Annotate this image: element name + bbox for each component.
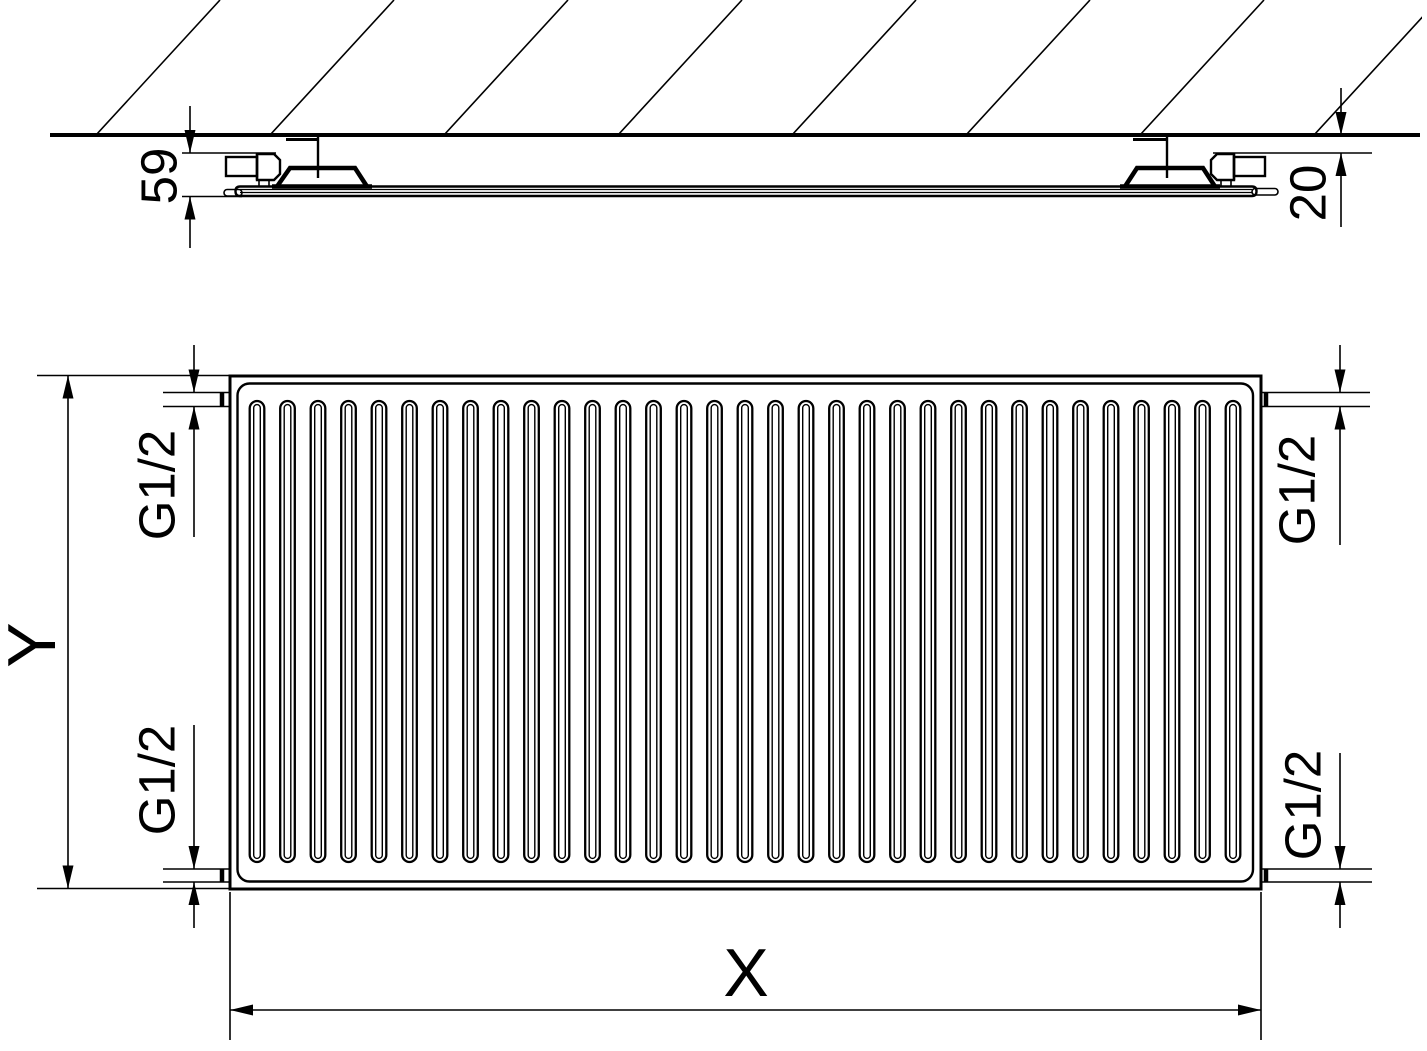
left-clip <box>277 168 367 187</box>
channel-slot <box>372 401 387 862</box>
channel-slot-inner <box>254 405 261 859</box>
channel-slot-inner <box>1169 405 1176 859</box>
channel-slot <box>341 401 356 862</box>
channel-slot-inner <box>681 405 688 859</box>
stub-bottom-right <box>1261 869 1372 882</box>
channel-slot <box>1226 401 1241 862</box>
wall-hatch <box>96 0 1427 135</box>
dim-wall-gap-label: 20 <box>1280 165 1337 222</box>
channel-slot-inner <box>1199 405 1206 859</box>
dim-width-label: X <box>723 935 768 1011</box>
channel-slot-inner <box>1230 405 1237 859</box>
channel-slot <box>890 401 905 862</box>
channel-slot-inner <box>345 405 352 859</box>
channel-slot <box>1195 401 1210 862</box>
channel-slot <box>677 401 692 862</box>
channel-slot-inner <box>315 405 322 859</box>
channel-slot-inner <box>772 405 779 859</box>
channel-slot <box>951 401 966 862</box>
slab-left-cap <box>236 187 241 197</box>
channel-slot-inner <box>955 405 962 859</box>
channel-slot-inner <box>803 405 810 859</box>
channel-slot <box>280 401 295 862</box>
channel-slot <box>585 401 600 862</box>
channel-slot-inner <box>284 405 291 859</box>
right-bracket <box>1120 137 1220 187</box>
channel-slot-inner <box>833 405 840 859</box>
channel-slot-inner <box>498 405 505 859</box>
channel-slot-inner <box>620 405 627 859</box>
channel-slot <box>524 401 539 862</box>
channel-slot <box>1165 401 1180 862</box>
channel-slot-inner <box>1077 405 1084 859</box>
channel-slot-inner <box>742 405 749 859</box>
radiator-inner-frame <box>238 384 1254 882</box>
channel-slot <box>921 401 936 862</box>
channel-slot <box>616 401 631 862</box>
channel-slot-inner <box>1108 405 1115 859</box>
conn-top-left-label: G1/2 <box>129 430 186 541</box>
channel-slot-inner <box>711 405 718 859</box>
channel-slot <box>1012 401 1027 862</box>
channel-slot <box>494 401 509 862</box>
channel-slot <box>829 401 844 862</box>
dim-height-label: Y <box>0 622 70 667</box>
left-valve <box>226 154 280 187</box>
channel-slot <box>707 401 722 862</box>
dim-conn-top-left: G1/2 <box>129 345 200 540</box>
channel-slot <box>982 401 997 862</box>
channel-slots <box>250 401 1241 862</box>
channel-slot-inner <box>894 405 901 859</box>
channel-slot <box>433 401 448 862</box>
dim-height-Y: Y <box>0 376 230 889</box>
dim-conn-bottom-left: G1/2 <box>129 725 200 928</box>
channel-slot <box>646 401 661 862</box>
stub-top-left <box>163 393 230 407</box>
stub-top-right <box>1261 393 1370 407</box>
channel-slot-inner <box>986 405 993 859</box>
channel-slot-inner <box>437 405 444 859</box>
conn-bottom-left-label: G1/2 <box>129 725 186 836</box>
left-bracket <box>272 137 372 187</box>
channel-slot <box>555 401 570 862</box>
channel-slot <box>738 401 753 862</box>
stub-bottom-left <box>163 869 230 882</box>
channel-slot <box>768 401 783 862</box>
front-view: Y X G1/2 G1/2 <box>0 345 1372 1040</box>
conn-bottom-right-label: G1/2 <box>1275 750 1332 861</box>
channel-slot <box>1104 401 1119 862</box>
channel-slot <box>1043 401 1058 862</box>
radiator-section <box>224 187 1278 197</box>
channel-slot-inner <box>589 405 596 859</box>
channel-slot <box>250 401 265 862</box>
channel-slot-inner <box>1047 405 1054 859</box>
channel-slot-inner <box>528 405 535 859</box>
channel-slot-inner <box>467 405 474 859</box>
dim-depth-label: 59 <box>131 148 188 205</box>
channel-slot <box>311 401 326 862</box>
channel-slot-inner <box>559 405 566 859</box>
right-clip <box>1125 168 1215 187</box>
channel-slot-inner <box>376 405 383 859</box>
top-view: 59 20 <box>50 0 1427 248</box>
channel-slot <box>1073 401 1088 862</box>
channel-slot-inner <box>406 405 413 859</box>
dim-conn-bottom-right: G1/2 <box>1275 750 1346 928</box>
channel-slot <box>799 401 814 862</box>
right-valve <box>1211 154 1265 187</box>
channel-slot-inner <box>1016 405 1023 859</box>
channel-slot <box>402 401 417 862</box>
channel-slot-inner <box>1138 405 1145 859</box>
radiator-outline <box>230 376 1261 889</box>
channel-slot-inner <box>864 405 871 859</box>
dim-conn-top-right: G1/2 <box>1269 345 1346 545</box>
radiator-drawing: 59 20 <box>0 0 1427 1051</box>
channel-slot <box>860 401 875 862</box>
dim-width-X: X <box>230 892 1261 1040</box>
channel-slot-inner <box>650 405 657 859</box>
channel-slot <box>1134 401 1149 862</box>
conn-top-right-label: G1/2 <box>1269 435 1326 546</box>
channel-slot-inner <box>925 405 932 859</box>
channel-slot <box>463 401 478 862</box>
